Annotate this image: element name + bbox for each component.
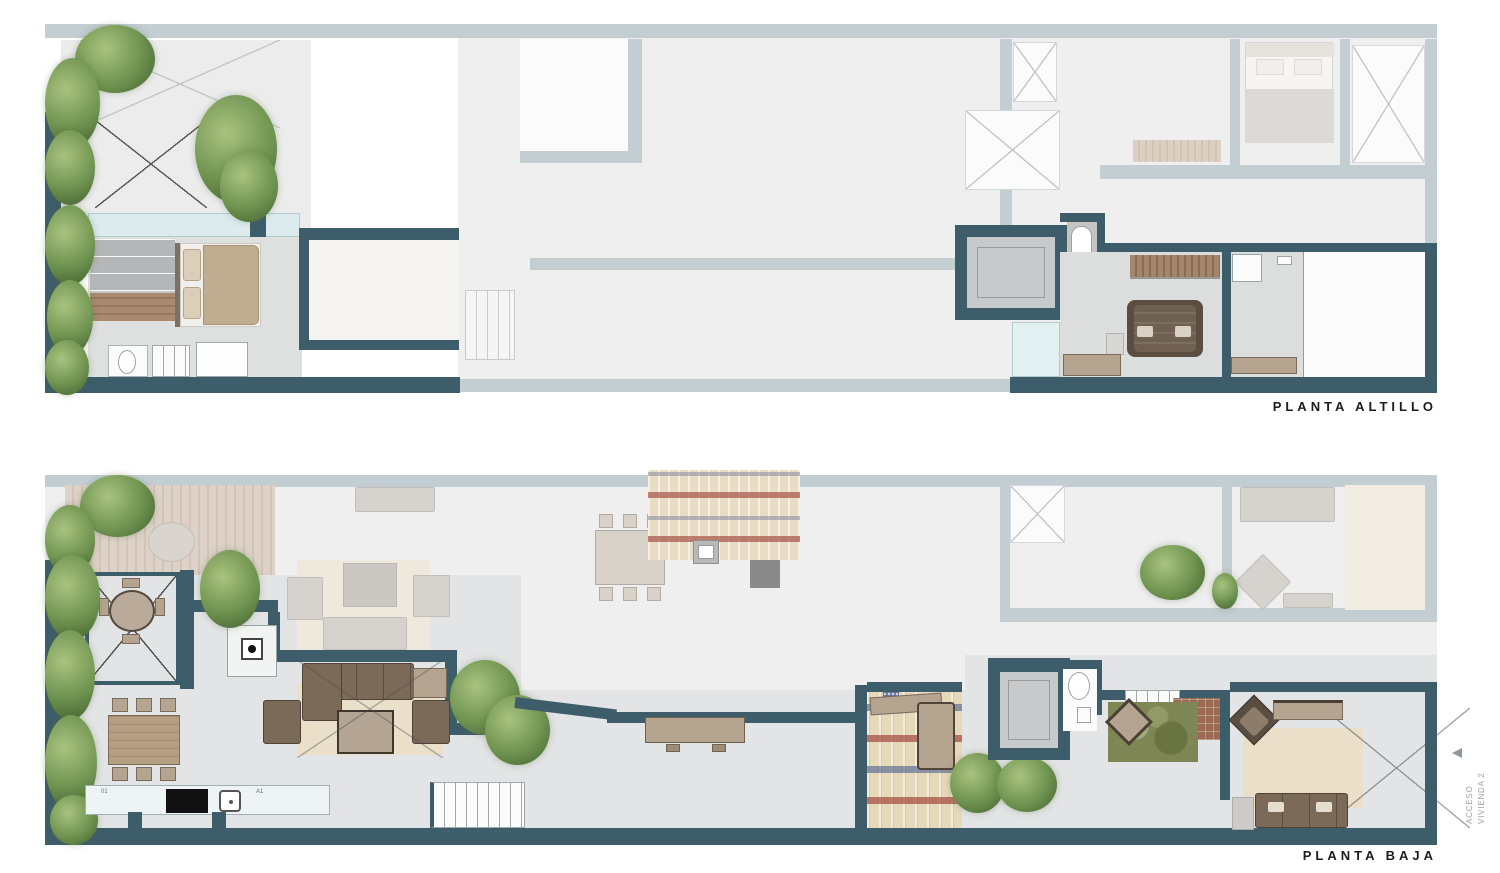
wall-segment [299, 340, 459, 350]
chair-faded [599, 514, 613, 528]
chair [122, 578, 140, 588]
plan-title-baja: PLANTA BAJA [1240, 848, 1437, 863]
table-round-faded [148, 522, 195, 562]
wall-segment-faded [628, 39, 642, 163]
wall-segment-faded [1100, 165, 1437, 179]
access-note-text: ACCESO VIVIENDA 2 [1464, 772, 1488, 824]
wood-floor-strip [90, 293, 175, 321]
wall-segment-faded [1230, 39, 1240, 179]
void-skylight [309, 240, 459, 340]
wall-segment [855, 685, 867, 828]
palm-tree [220, 150, 278, 222]
stairs [152, 345, 190, 377]
shrub [1212, 573, 1238, 609]
chair [160, 698, 176, 712]
void-skylight [1303, 252, 1425, 377]
wall-segment [180, 570, 194, 689]
toilet [118, 350, 136, 374]
floor-plan-altillo [45, 10, 1437, 395]
wood-deck [95, 120, 207, 208]
closet-faded [1133, 140, 1221, 162]
plan-title-altillo: PLANTA ALTILLO [1240, 399, 1437, 414]
void-skylight-faded [1352, 45, 1425, 163]
elevator-shaft [955, 225, 1067, 320]
sun-lounger [917, 702, 955, 770]
bed [175, 243, 261, 327]
chair-faded [623, 514, 637, 528]
sofa-faded [1240, 487, 1335, 522]
kitchen-annotation: A1 [256, 789, 263, 795]
wall-segment-faded [1000, 475, 1010, 608]
stairs [430, 782, 525, 828]
sink [1277, 256, 1292, 265]
shrub [45, 205, 95, 285]
chair [99, 598, 109, 616]
stairs-faded [465, 290, 515, 360]
console-table [645, 717, 745, 743]
void-skylight-faded [965, 110, 1060, 190]
void-skylight-faded [1010, 485, 1065, 543]
dining-table [108, 715, 180, 765]
arrow-left-icon [1452, 748, 1462, 758]
pillar [212, 812, 226, 828]
wall-segment [867, 682, 957, 692]
pillow [1175, 326, 1191, 337]
wall-segment [1105, 243, 1437, 252]
kitchen-sink [219, 790, 241, 812]
architectural-drawing: 01 A1 [0, 0, 1500, 873]
kitchen-counter: 01 A1 [85, 785, 330, 815]
chair-faded [599, 587, 613, 601]
wall-segment-faded [1340, 39, 1350, 179]
chair [160, 767, 176, 781]
kitchen-tile-floor [648, 470, 800, 560]
void-outline-dashed [297, 660, 443, 758]
palm-tree [997, 757, 1057, 812]
party-wall [45, 24, 1437, 38]
console-table-faded [1283, 593, 1333, 608]
wall-segment-faded [1000, 608, 1437, 622]
bed-faded [1245, 42, 1333, 142]
pillow [1137, 326, 1153, 337]
kitchen-annotation: 01 [101, 789, 108, 795]
access-note: ACCESO VIVIENDA 2 [1448, 726, 1494, 836]
stairs-curved [196, 342, 248, 377]
side-table [1106, 333, 1124, 355]
wc-room [1063, 669, 1097, 731]
pillow [183, 287, 201, 319]
wc-room [108, 345, 148, 377]
shrub [45, 340, 89, 395]
access-note-line2: VIVIENDA 2 [1477, 772, 1486, 824]
sideboard [1063, 354, 1121, 376]
void-skylight-faded [1013, 42, 1057, 102]
palm-tree [1140, 545, 1205, 600]
wall-segment [299, 228, 459, 240]
wall-segment-faded [1425, 39, 1437, 243]
shrub [45, 630, 95, 720]
chair [136, 698, 152, 712]
wall-segment [1230, 682, 1437, 692]
chair-faded [647, 587, 661, 601]
shower [1232, 254, 1262, 282]
duvet [203, 245, 259, 325]
pillow [183, 249, 201, 281]
wall-segment [1425, 243, 1437, 393]
kitchen-counter-dark [750, 560, 780, 588]
wardrobe [90, 239, 175, 291]
kitchen-sink [693, 540, 719, 564]
chair-faded [623, 587, 637, 601]
tree [200, 550, 260, 628]
pillow [1268, 802, 1284, 812]
glass-roof-strip [88, 213, 300, 237]
shrub [45, 555, 100, 640]
wall-segment [1222, 252, 1231, 383]
side-table [1232, 797, 1254, 830]
floor-plan-baja: 01 A1 [45, 465, 1437, 845]
cooktop [166, 789, 208, 813]
access-note-line1: ACCESO [1465, 785, 1474, 824]
chair [112, 698, 128, 712]
chair [155, 598, 165, 616]
wall-segment-faded [520, 151, 640, 163]
rug-room-faded [1345, 485, 1425, 610]
wall-segment [45, 828, 1437, 845]
armchair-faded [287, 577, 323, 620]
sideboard [1231, 357, 1297, 374]
wall-segment [299, 228, 309, 350]
table-round [109, 590, 155, 632]
wall-segment-faded [460, 379, 1010, 392]
room-faded [520, 39, 628, 151]
elevator-shaft [988, 658, 1070, 760]
toilet [1068, 672, 1090, 700]
coffee-table-faded [343, 563, 397, 607]
sink [1077, 707, 1091, 723]
wall-segment [45, 377, 460, 393]
bbq-counter [227, 625, 277, 677]
pillow [1316, 802, 1332, 812]
wall-segment [1425, 688, 1437, 845]
console-table [1273, 700, 1343, 720]
daybed [1127, 300, 1203, 357]
chair [112, 767, 128, 781]
bbq-grill [241, 638, 263, 660]
pillar [128, 812, 142, 828]
wall-segment [1220, 700, 1230, 800]
shrub [45, 130, 95, 205]
chair [136, 767, 152, 781]
sofa-faded [323, 617, 407, 650]
light-shaft [1012, 322, 1060, 377]
armchair-faded [413, 575, 450, 617]
sofa-faded [355, 487, 435, 512]
sofa [1255, 793, 1348, 828]
armchair [263, 700, 301, 744]
wall-segment-faded [1425, 475, 1437, 608]
closet-rail [1130, 255, 1220, 277]
chair [122, 634, 140, 644]
wall-segment [1010, 377, 1437, 393]
